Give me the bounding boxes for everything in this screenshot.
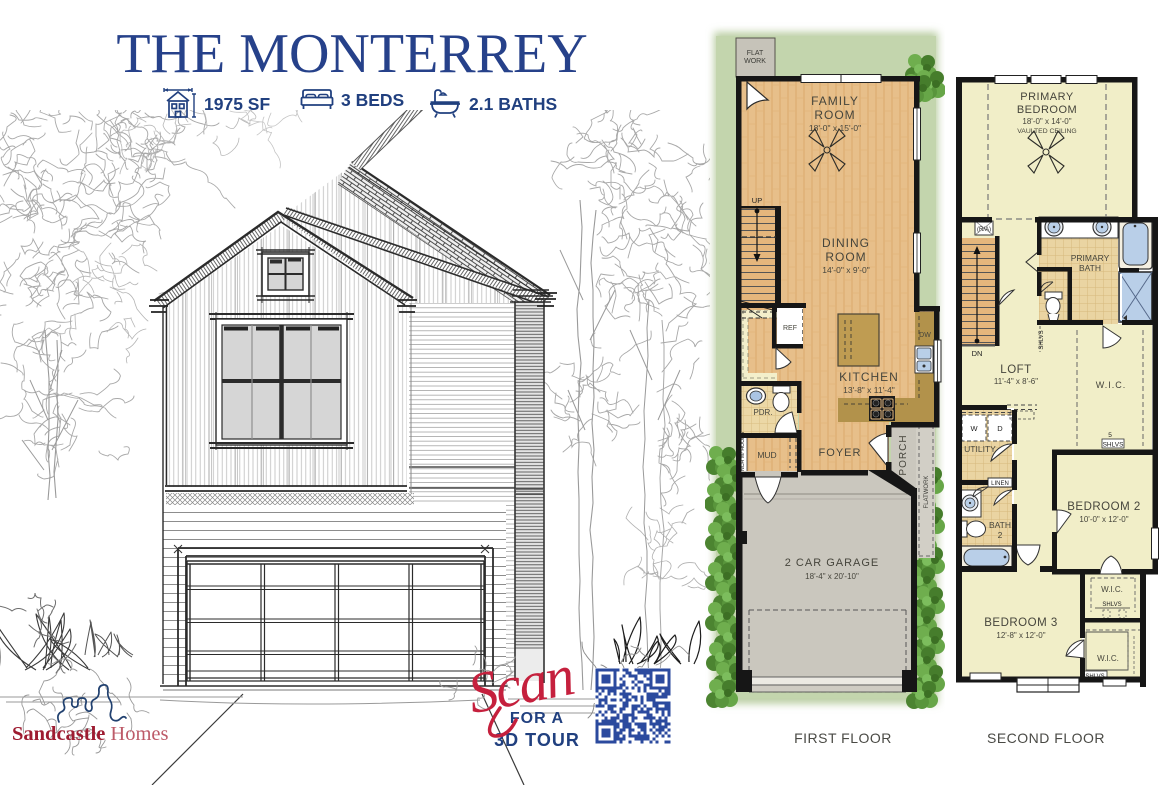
svg-text:DN: DN	[972, 349, 983, 358]
svg-text:14'-0" x 9'-0": 14'-0" x 9'-0"	[822, 265, 870, 275]
svg-text:W.I.C.: W.I.C.	[1097, 654, 1119, 663]
svg-text:ROOM: ROOM	[825, 250, 866, 264]
svg-text:18'-0" x 14'-0": 18'-0" x 14'-0"	[1022, 117, 1071, 126]
svg-text:DW: DW	[919, 332, 931, 339]
svg-text:PDR.: PDR.	[753, 408, 772, 417]
svg-text:W.I.C.: W.I.C.	[1096, 380, 1127, 390]
svg-text:BEDROOM 2: BEDROOM 2	[1067, 501, 1141, 513]
svg-text:PORCH: PORCH	[898, 434, 909, 475]
svg-text:FLAT: FLAT	[747, 50, 764, 57]
svg-text:LOFT: LOFT	[1000, 364, 1031, 376]
svg-text:5: 5	[1108, 432, 1112, 439]
svg-text:DINING: DINING	[822, 236, 870, 250]
svg-text:(R/A): (R/A)	[977, 227, 991, 233]
svg-text:PRIMARY: PRIMARY	[1020, 91, 1074, 103]
svg-text:FOR A: FOR A	[510, 710, 564, 727]
svg-text:11'-4" x 8'-6": 11'-4" x 8'-6"	[994, 377, 1038, 386]
svg-text:SandcastleHomes: SandcastleHomes	[12, 723, 169, 745]
svg-text:WORK: WORK	[744, 58, 766, 65]
svg-text:W: W	[970, 424, 978, 433]
svg-text:W.I.C.: W.I.C.	[1101, 585, 1123, 594]
svg-text:12'-8" x 12'-0": 12'-8" x 12'-0"	[996, 631, 1045, 640]
svg-text:BATH: BATH	[989, 520, 1011, 530]
svg-text:2: 2	[998, 530, 1003, 540]
svg-text:MUD: MUD	[757, 450, 776, 460]
svg-text:13'-8" x 11'-4": 13'-8" x 11'-4"	[843, 385, 895, 395]
svg-text:BEDROOM 3: BEDROOM 3	[984, 617, 1058, 629]
svg-text:BEDROOM: BEDROOM	[1017, 104, 1077, 116]
svg-text:FOYER: FOYER	[819, 447, 862, 459]
svg-text:UP: UP	[752, 196, 762, 205]
svg-text:REF: REF	[783, 325, 797, 332]
svg-text:ROOM: ROOM	[814, 108, 855, 122]
svg-text:BATH: BATH	[1079, 263, 1101, 273]
svg-text:FLATWORK: FLATWORK	[924, 476, 930, 509]
svg-text:LINEN: LINEN	[991, 481, 1009, 487]
svg-text:KITCHEN: KITCHEN	[839, 370, 899, 384]
svg-text:UTILITY: UTILITY	[964, 444, 996, 454]
svg-text:10'-0" x 12'-0": 10'-0" x 12'-0"	[1079, 515, 1128, 524]
svg-text:SHLVS: SHLVS	[1103, 442, 1124, 449]
svg-text:2 CAR GARAGE: 2 CAR GARAGE	[785, 557, 880, 569]
svg-text:PRIMARY: PRIMARY	[1071, 253, 1110, 263]
svg-text:VAULTED CEILING: VAULTED CEILING	[1017, 128, 1076, 135]
svg-text:FAMILY: FAMILY	[811, 94, 859, 108]
svg-text:SHLVS: SHLVS	[1102, 602, 1121, 608]
svg-text:D: D	[997, 424, 1003, 433]
svg-text:18'-4" x 20'-10": 18'-4" x 20'-10"	[805, 572, 859, 581]
